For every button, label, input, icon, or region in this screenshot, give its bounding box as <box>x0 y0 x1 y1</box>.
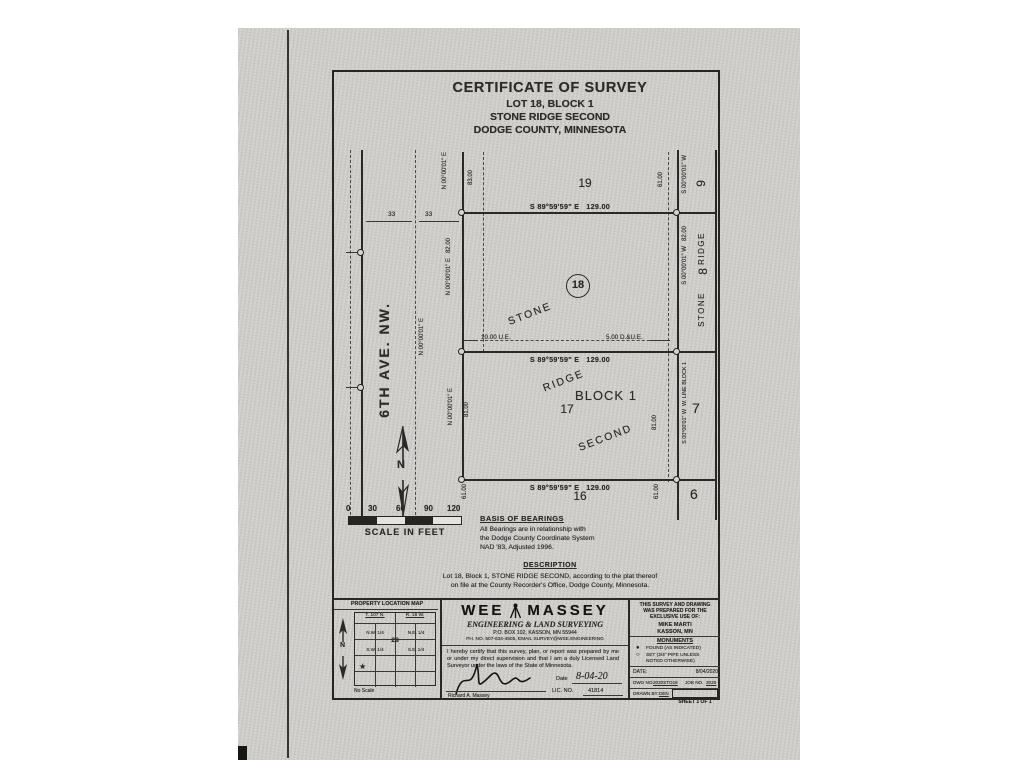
drawn-by-label: DRAWN BY: <box>633 691 659 696</box>
client-city: KASSON, MN <box>630 629 720 635</box>
titleblock-top-border <box>332 598 720 600</box>
firm-contact: PH. NO. 507-634-4505, EMAIL SURVEY@WSE.E… <box>442 637 628 642</box>
lot18-number: 18 <box>572 279 584 291</box>
section-number: 28 <box>387 637 403 644</box>
lot18-circled-number: 18 <box>566 274 590 298</box>
block1-west-lot-line <box>462 152 464 482</box>
scale-bar <box>348 516 462 525</box>
title-county-line: DODGE COUNTY, MINNESOTA <box>420 124 680 136</box>
street-west-edge-line <box>361 150 363 520</box>
sheet-number: SHEET 1 OF 1 <box>678 699 711 705</box>
job-no-label: JOB NO. <box>685 680 703 685</box>
lot9-east-dim: 61.00 <box>658 172 664 187</box>
lic-no-underline <box>583 695 623 696</box>
easement-leader-right <box>650 340 670 341</box>
sw-quarter-label: S.W. 1/4 <box>356 647 394 652</box>
title-plat-line: STONE RIDGE SECOND <box>420 111 680 123</box>
basis-heading: BASIS OF BEARINGS <box>480 514 564 523</box>
scale-bar-segment <box>405 517 433 524</box>
lot7-number: 7 <box>692 400 700 416</box>
client-name: MIKE MARTI <box>630 622 720 628</box>
drainage-easement-line <box>668 152 669 482</box>
scale-tick-60: 60 <box>396 504 405 513</box>
dwg-no-label: DWG NO. <box>633 680 654 685</box>
adjacent-plat-ridge: RIDGE <box>697 232 706 265</box>
lot16-west-dim: 61.00 <box>462 484 468 499</box>
monument-icon <box>458 209 465 216</box>
admin-row-divider-1 <box>630 677 720 678</box>
monument-found-icon: ● <box>636 645 640 651</box>
admin-date-value: 8/04/2020 <box>680 669 718 675</box>
signer-name: Richard A. Massey <box>448 693 490 699</box>
location-map-heading-rule <box>334 609 438 610</box>
scale-bar-segment <box>349 517 377 524</box>
description-heading: DESCRIPTION <box>495 562 605 569</box>
utility-easement-label: 10.00 U.E. <box>481 334 511 341</box>
cert-date-value: 8-04-20 <box>576 671 608 682</box>
basis-line-2: the Dodge County Coordinate System <box>480 535 594 542</box>
firm-logo-left: WEE <box>461 602 504 619</box>
basis-line-1: All Bearings are in relationship with <box>480 526 586 533</box>
lot19-number: 19 <box>570 176 600 190</box>
block-label: BLOCK 1 <box>565 388 647 403</box>
lot17-west-dim: 81.00 <box>464 402 470 417</box>
monument-icon <box>673 209 680 216</box>
monument-found-label: FOUND (AS INDICATED) <box>646 646 701 651</box>
location-map-heading: PROPERTY LOCATION MAP <box>336 601 438 607</box>
lot9-number: 9 <box>694 180 708 187</box>
firm-address: P.O. BOX 102, KASSON, MN 55944 <box>442 630 628 636</box>
certificate-title: CERTIFICATE OF SURVEY <box>420 80 680 96</box>
street-centerline <box>415 150 416 520</box>
map-north-arrow-icon <box>338 618 348 680</box>
subject-parcel-star: ★ <box>359 662 366 671</box>
block1-east-lot-line <box>677 150 679 520</box>
south-line-bearing: S 89°59'59" E 129.00 <box>500 483 640 492</box>
mid-line-bearing: S 89°59'59" E 129.00 <box>500 355 640 364</box>
scanned-survey-screenshot: CERTIFICATE OF SURVEY LOT 18, BLOCK 1 ST… <box>0 0 1024 768</box>
map-north-letter: N <box>340 642 345 649</box>
west-boundary-dashed-line <box>350 150 351 520</box>
firm-logo: WEE MASSEY <box>442 602 628 619</box>
description-line-2: on file at the County Recorder's Office,… <box>385 582 715 589</box>
north-line-bearing: S 89°59'59" E 129.00 <box>500 202 640 211</box>
scale-bar-segment <box>377 517 405 524</box>
monument-set-icon: ○ <box>636 652 640 658</box>
sheet-number-box: SHEET 1 OF 1 <box>672 689 718 698</box>
scan-corner-artifact <box>238 746 247 760</box>
signature-underline <box>446 691 546 692</box>
lot9-east-bearing: S 00°00'01" W <box>682 155 688 194</box>
survey-tripod-icon <box>509 603 522 619</box>
monument-set-label: SET (3/4" PIPE UNLESS NOTED OTHERWISE) <box>646 653 714 665</box>
grid-line <box>395 613 396 687</box>
monument-icon <box>673 348 680 355</box>
nw-quarter-label: N.W. 1/4 <box>356 630 394 635</box>
lot7-east-bearing: S 00°00'01" W W. LINE BLOCK 1 <box>682 362 688 444</box>
lot6-number: 6 <box>690 486 698 502</box>
lot17-west-bearing: N 00°00'01" E <box>448 388 454 425</box>
scale-tick-0: 0 <box>346 504 350 513</box>
scale-tick-90: 90 <box>424 504 433 513</box>
no-scale-label: No Scale <box>354 688 374 694</box>
street-dim-line-left <box>366 221 412 222</box>
admin-date-label: DATE: <box>633 669 647 675</box>
street-half-width-right: 33 <box>425 211 432 218</box>
description-line-1: Lot 18, Block 1, STONE RIDGE SECOND, acc… <box>385 573 715 580</box>
adjacent-plat-stone: STONE <box>697 292 706 327</box>
lot17-number: 17 <box>552 402 582 416</box>
monument-icon <box>357 384 364 391</box>
basis-line-3: NAD '83, Adjusted 1996. <box>480 544 554 551</box>
monument-icon <box>458 476 465 483</box>
utility-easement-line <box>483 152 484 352</box>
firm-logo-right: MASSEY <box>527 602 608 619</box>
north-arrow-letter: N <box>397 459 405 471</box>
se-quarter-label: S.E. 1/4 <box>397 647 435 652</box>
lot7-east-dim: 81.00 <box>652 415 658 430</box>
title-lot-line: LOT 18, BLOCK 1 <box>420 98 680 110</box>
scale-bar-segment <box>433 517 461 524</box>
dwg-no-value: 2020STO18 <box>653 680 678 685</box>
township-label: T. 107 N. <box>355 613 395 618</box>
client-divider <box>630 636 720 637</box>
adjacent-lots-east-line <box>715 150 717 520</box>
drawn-by-value: DEN <box>659 691 669 696</box>
drainage-easement-label: 5.00 D.&U.E. <box>606 334 643 341</box>
street-name-label: 6TH AVE. NW. <box>376 302 392 418</box>
scan-edge-line <box>287 30 289 758</box>
lic-no-value: 41814 <box>588 688 603 694</box>
easement-leader-left <box>464 340 478 341</box>
monument-icon <box>458 348 465 355</box>
lot18-west-bearing-dim: N 00°00'01" E 82.00 <box>446 238 452 295</box>
lot19-west-bearing: N 00°00'01" E <box>442 152 448 189</box>
lot8-east-bearing-dim: S 00°00'01" W 82.00 <box>682 226 688 285</box>
monuments-divider <box>630 666 720 667</box>
lot19-west-dim: 83.00 <box>468 170 474 185</box>
cert-date-underline <box>572 683 622 684</box>
lot8-number: 8 <box>696 268 710 275</box>
monuments-heading: MONUMENTS <box>630 638 720 644</box>
monument-icon <box>673 476 680 483</box>
cert-date-label: Date <box>556 676 568 682</box>
scale-tick-120: 120 <box>447 504 460 513</box>
scale-tick-30: 30 <box>368 504 377 513</box>
client-heading-3: EXCLUSIVE USE OF: <box>630 614 720 620</box>
firm-divider <box>442 645 628 646</box>
range-label: R. 16 W. <box>395 613 435 618</box>
street-dim-line-right <box>419 221 459 222</box>
lic-no-label: LIC. NO. <box>552 688 573 694</box>
firm-tagline: ENGINEERING & LAND SURVEYING <box>442 620 628 629</box>
monument-icon <box>357 249 364 256</box>
scale-caption: SCALE IN FEET <box>350 527 460 537</box>
street-centerline-bearing: N 00°00'01" E <box>419 318 425 355</box>
lot6-east-dim: 61.00 <box>654 484 660 499</box>
street-half-width-left: 33 <box>388 211 395 218</box>
ne-quarter-label: N.E. 1/4 <box>397 630 435 635</box>
job-no-value: 2026 <box>706 680 716 685</box>
